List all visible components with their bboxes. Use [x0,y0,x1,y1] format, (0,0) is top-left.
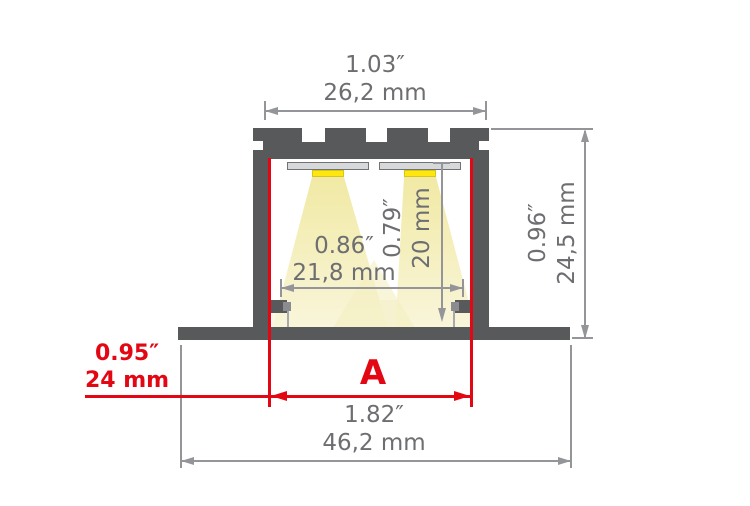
diffuser-clip-left [283,302,291,311]
label-outer-height: 0.96″ 24,5 mm [524,158,582,308]
dim-outer-height-line [584,131,586,337]
label-outer-width-mm: 46,2 mm [274,430,474,457]
label-outer-height-inches: 0.96″ [524,158,553,308]
dim-outer-width-ext-right [570,345,572,468]
mounting-notch-left [253,141,263,150]
dim-cutout-arrow-right [454,391,470,401]
dim-outer-width-arrow-right [558,457,571,465]
label-inner-height-inches: 0.79″ [379,163,408,293]
label-outer-width-inches: 1.82″ [274,402,474,429]
label-top-width-inches: 1.03″ [275,52,475,79]
led-pcb-left [287,162,369,170]
dim-cutout-arrow-left [271,391,287,401]
label-cutout-inches: 0.95″ [62,341,192,367]
heatsink-fin-2 [325,128,366,143]
mounting-notch-right [479,141,489,150]
dim-outer-width-arrow-left [181,457,194,465]
dim-outer-height-arrow-up [581,129,589,142]
dim-outer-height-arrow-down [581,325,589,339]
dim-top-width-arrow-right [473,107,486,115]
label-top-width-mm: 26,2 mm [275,80,475,107]
label-inner-height: 0.79″ 20 mm [379,163,437,293]
dim-outer-height-ext-top [491,128,593,130]
dim-outer-width-line [181,460,571,462]
cutout-line-right [470,158,473,407]
label-cutout-letter: A [341,355,405,391]
mounting-flange [178,327,570,340]
label-inner-height-mm: 20 mm [408,163,437,293]
led-chip-left [312,170,344,177]
profile-wall-right [473,159,489,340]
profile-cross-section-diagram: 1.03″ 26,2 mm 0.86″ 21,8 mm 0.79″ 20 mm … [0,0,750,506]
label-outer-height-mm: 24,5 mm [553,158,582,308]
label-cutout-mm: 24 mm [62,368,192,394]
dim-top-width-line [265,110,486,112]
heatsink-fin-3 [387,128,428,143]
diffuser-clip-right [451,302,459,311]
dim-inner-height-arrow-down [438,308,446,322]
profile-top-cap [253,142,489,159]
dim-top-width-arrow-left [265,107,278,115]
dim-inner-width-arrow-right [450,284,463,292]
